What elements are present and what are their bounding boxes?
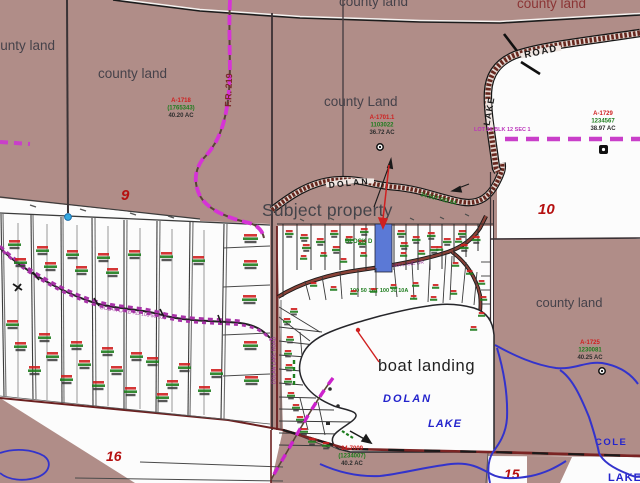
svg-text:county land: county land <box>98 66 167 81</box>
svg-text:county land: county land <box>0 38 55 53</box>
svg-text:LOT 26 BLK 12 SEC 1: LOT 26 BLK 12 SEC 1 <box>474 127 531 133</box>
svg-text:36.72 AC: 36.72 AC <box>369 130 395 136</box>
svg-text:BLOCK D: BLOCK D <box>345 239 373 245</box>
svg-text:15: 15 <box>504 466 520 482</box>
svg-text:40.25 AC: 40.25 AC <box>577 355 603 361</box>
svg-text:county Land: county Land <box>324 94 398 109</box>
svg-text:Subject property: Subject property <box>262 200 393 220</box>
svg-text:DOLAN: DOLAN <box>383 393 432 405</box>
svg-text:DOLAN LAKE ROAD: DOLAN LAKE ROAD <box>272 336 278 384</box>
svg-text:F.R. 219: F.R. 219 <box>223 73 234 107</box>
svg-text:county land: county land <box>339 0 408 9</box>
svg-text:100 50 1AT 100 30 10A: 100 50 1AT 100 30 10A <box>350 288 408 294</box>
svg-text:(1234007): (1234007) <box>338 454 365 460</box>
svg-text:LAKE: LAKE <box>428 418 462 430</box>
svg-text:34-7009: 34-7009 <box>341 446 364 452</box>
svg-text:A-1718: A-1718 <box>171 98 191 104</box>
svg-text:16: 16 <box>106 448 122 464</box>
svg-text:county land: county land <box>517 0 586 11</box>
svg-text:40.20 AC: 40.20 AC <box>168 113 194 119</box>
svg-text:1103022: 1103022 <box>370 123 394 129</box>
svg-text:(1765343): (1765343) <box>167 106 194 112</box>
svg-text:COLE: COLE <box>595 437 627 448</box>
svg-text:county land: county land <box>536 295 603 310</box>
svg-text:40.2 AC: 40.2 AC <box>341 461 363 467</box>
svg-text:A-1729: A-1729 <box>593 111 613 117</box>
svg-text:38.97 AC: 38.97 AC <box>590 126 616 132</box>
svg-text:boat landing: boat landing <box>378 357 475 375</box>
svg-text:1230081: 1230081 <box>578 348 602 354</box>
svg-text:1234567: 1234567 <box>591 119 615 125</box>
svg-text:A-1701.1: A-1701.1 <box>370 115 395 121</box>
svg-text:A-1725: A-1725 <box>580 340 600 346</box>
svg-text:10: 10 <box>538 201 555 218</box>
svg-text:9: 9 <box>121 187 130 204</box>
